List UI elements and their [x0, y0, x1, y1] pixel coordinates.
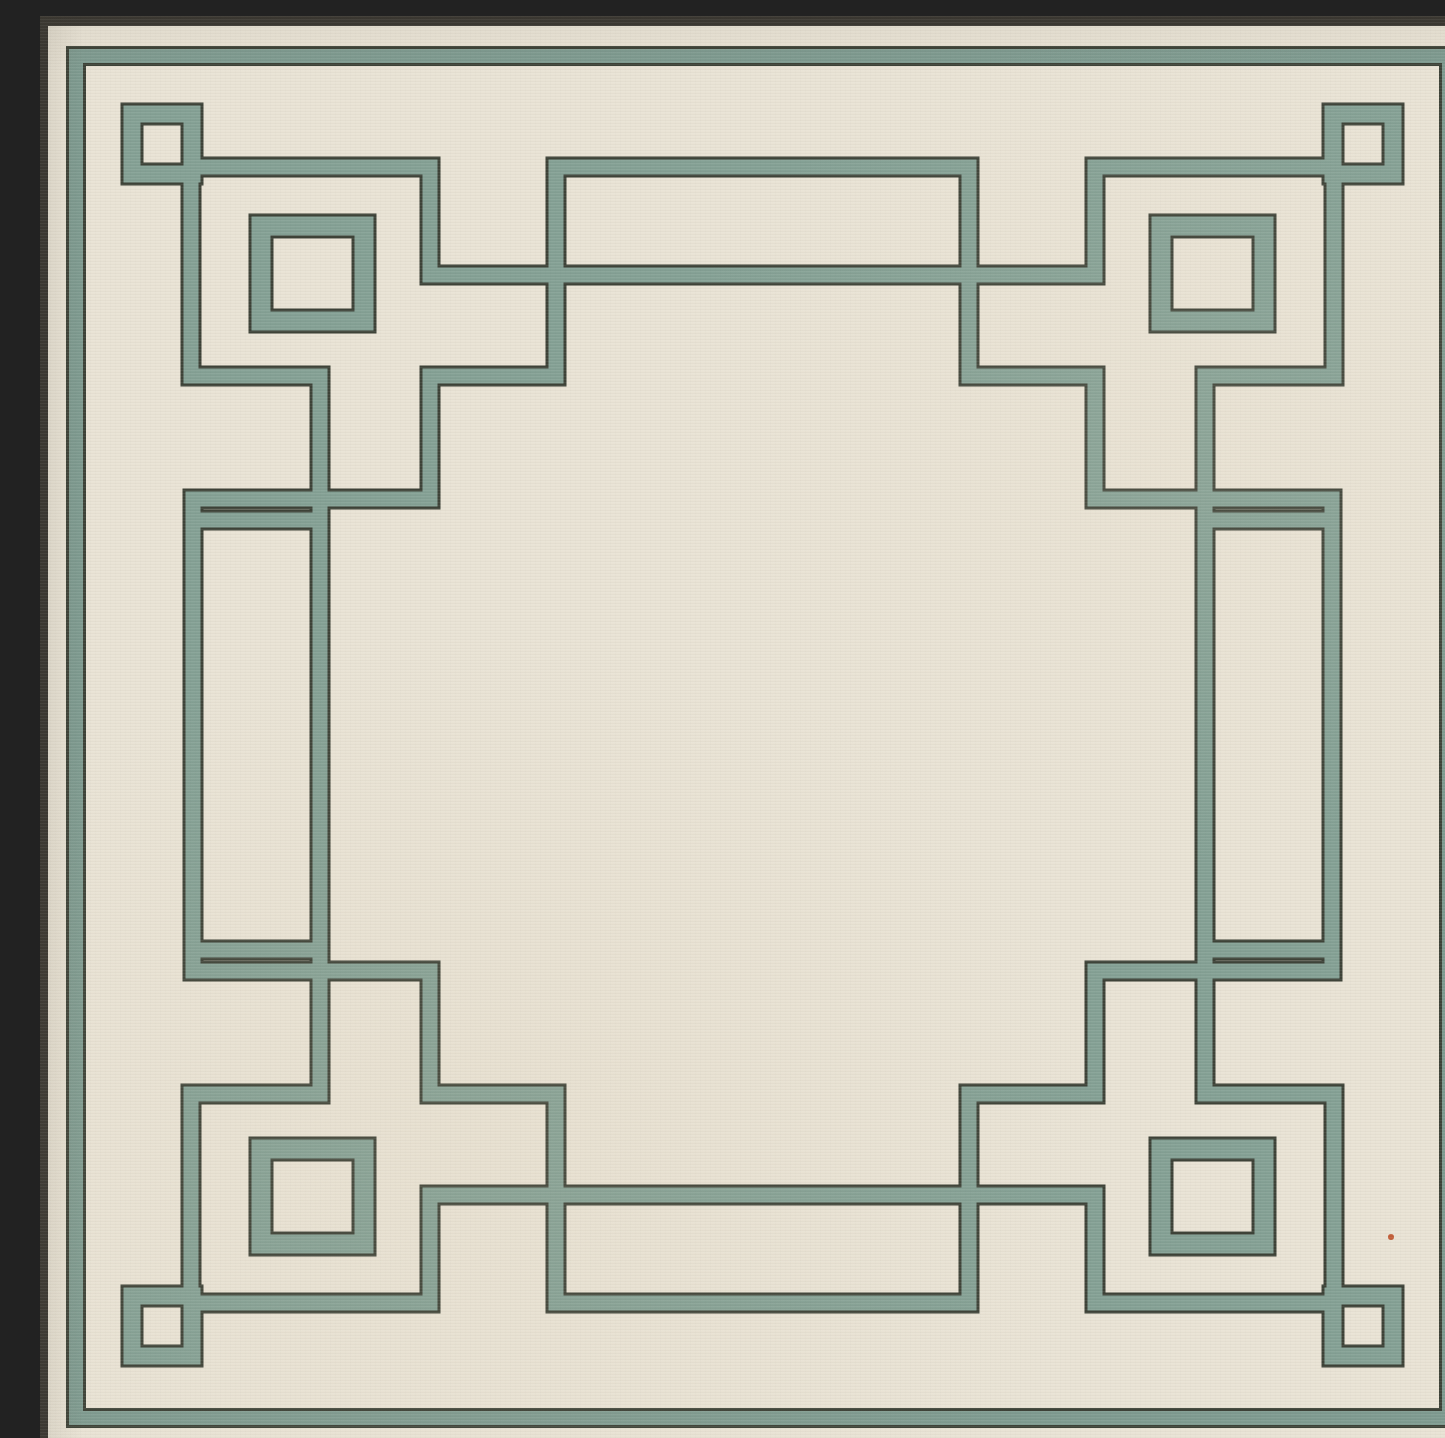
stray-fiber-fleck — [1388, 1234, 1394, 1240]
rug-product-photo — [40, 16, 1445, 1438]
rug-vector — [40, 16, 1445, 1438]
